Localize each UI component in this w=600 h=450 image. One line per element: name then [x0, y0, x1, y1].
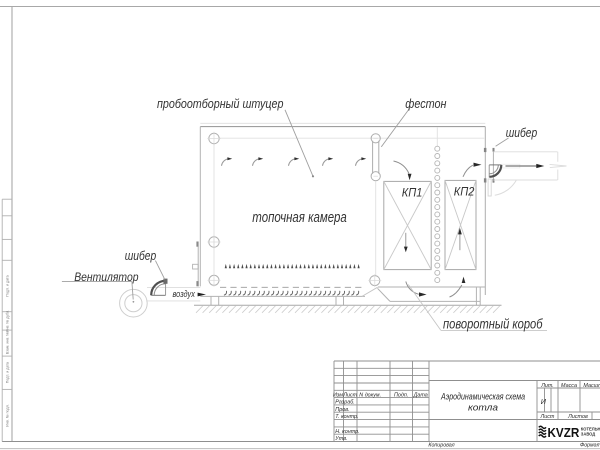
svg-text:Копировал: Копировал — [428, 443, 454, 449]
svg-text:фестон: фестон — [405, 96, 446, 111]
svg-text:Лист: Лист — [540, 414, 555, 420]
svg-text:воздух: воздух — [173, 289, 196, 300]
svg-text:Вентилятор: Вентилятор — [74, 270, 138, 284]
svg-text:Подп.: Подп. — [394, 392, 408, 398]
svg-text:KVZR: KVZR — [548, 425, 580, 440]
svg-text:Инв. № дубл.: Инв. № дубл. — [6, 310, 10, 332]
svg-text:Разраб.: Разраб. — [335, 400, 355, 406]
svg-text:КП2: КП2 — [454, 185, 475, 198]
svg-text:N докум.: N докум. — [359, 392, 381, 398]
svg-text:поворотный короб: поворотный короб — [443, 317, 543, 333]
svg-text:Подп. и дата: Подп. и дата — [6, 275, 10, 296]
svg-text:Т. контр.: Т. контр. — [335, 414, 358, 420]
svg-text:пробоотборный штуцер: пробоотборный штуцер — [157, 96, 284, 111]
svg-text:Аэродинамическая схема: Аэродинамическая схема — [440, 391, 525, 402]
svg-text:Масса: Масса — [561, 383, 577, 389]
svg-text:Н. контр.: Н. контр. — [335, 429, 359, 435]
svg-text:ЗАВОД: ЗАВОД — [581, 432, 596, 437]
svg-text:шибер: шибер — [506, 125, 537, 140]
svg-text:топочная камера: топочная камера — [252, 210, 346, 226]
svg-text:шибер: шибер — [125, 248, 156, 263]
svg-text:Формат: Формат — [580, 443, 600, 449]
svg-text:И: И — [541, 397, 547, 406]
svg-text:Лит.: Лит. — [540, 383, 554, 389]
svg-text:Лист: Лист — [342, 392, 357, 398]
svg-text:КП1: КП1 — [402, 186, 423, 199]
svg-text:Подп. и дата: Подп. и дата — [6, 362, 10, 383]
svg-text:Листов: Листов — [567, 414, 588, 420]
svg-text:Пров.: Пров. — [335, 407, 349, 413]
svg-text:Утв.: Утв. — [334, 436, 347, 442]
svg-text:Дата: Дата — [413, 392, 428, 398]
svg-text:Инв. № подл.: Инв. № подл. — [6, 404, 10, 426]
svg-text:котла: котла — [468, 402, 498, 413]
svg-text:Масштаб: Масштаб — [583, 383, 600, 389]
svg-text:Взам. инв. №: Взам. инв. № — [6, 332, 10, 354]
